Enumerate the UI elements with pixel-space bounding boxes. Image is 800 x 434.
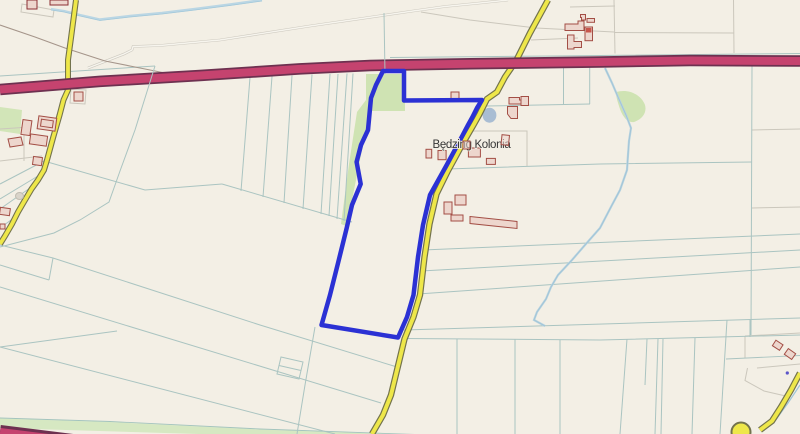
svg-text:Będzing Kolonia: Będzing Kolonia bbox=[433, 139, 512, 151]
